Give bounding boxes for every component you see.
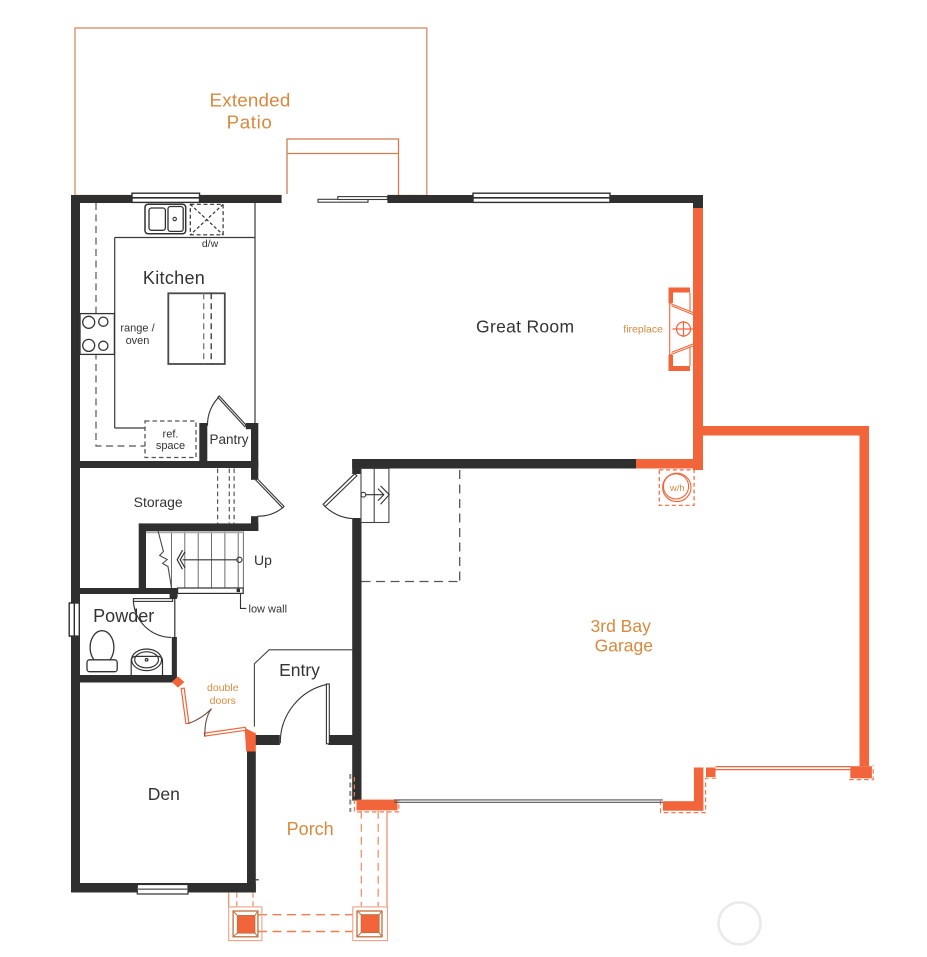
svg-text:3rd Bay: 3rd Bay: [591, 616, 652, 636]
svg-text:Entry: Entry: [279, 660, 320, 680]
svg-text:Kitchen: Kitchen: [143, 268, 205, 288]
svg-text:ref.: ref.: [163, 429, 179, 441]
svg-text:Extended: Extended: [210, 90, 291, 111]
svg-text:oven: oven: [126, 335, 150, 347]
svg-text:w/h: w/h: [669, 483, 685, 494]
svg-text:range /: range /: [120, 323, 155, 335]
svg-text:d/w: d/w: [202, 238, 219, 250]
svg-text:low wall: low wall: [249, 604, 288, 616]
svg-text:Patio: Patio: [227, 112, 273, 133]
svg-text:double: double: [207, 682, 239, 694]
svg-text:Garage: Garage: [595, 636, 653, 656]
svg-text:Porch: Porch: [287, 819, 334, 839]
svg-text:Up: Up: [254, 552, 272, 568]
svg-text:space: space: [156, 440, 185, 452]
svg-text:Den: Den: [148, 784, 180, 804]
svg-text:fireplace: fireplace: [623, 324, 663, 336]
svg-text:Pantry: Pantry: [209, 432, 248, 447]
svg-text:Storage: Storage: [134, 494, 183, 510]
svg-text:Great Room: Great Room: [476, 316, 574, 336]
svg-text:Powder: Powder: [93, 606, 154, 626]
svg-text:doors: doors: [210, 695, 236, 707]
